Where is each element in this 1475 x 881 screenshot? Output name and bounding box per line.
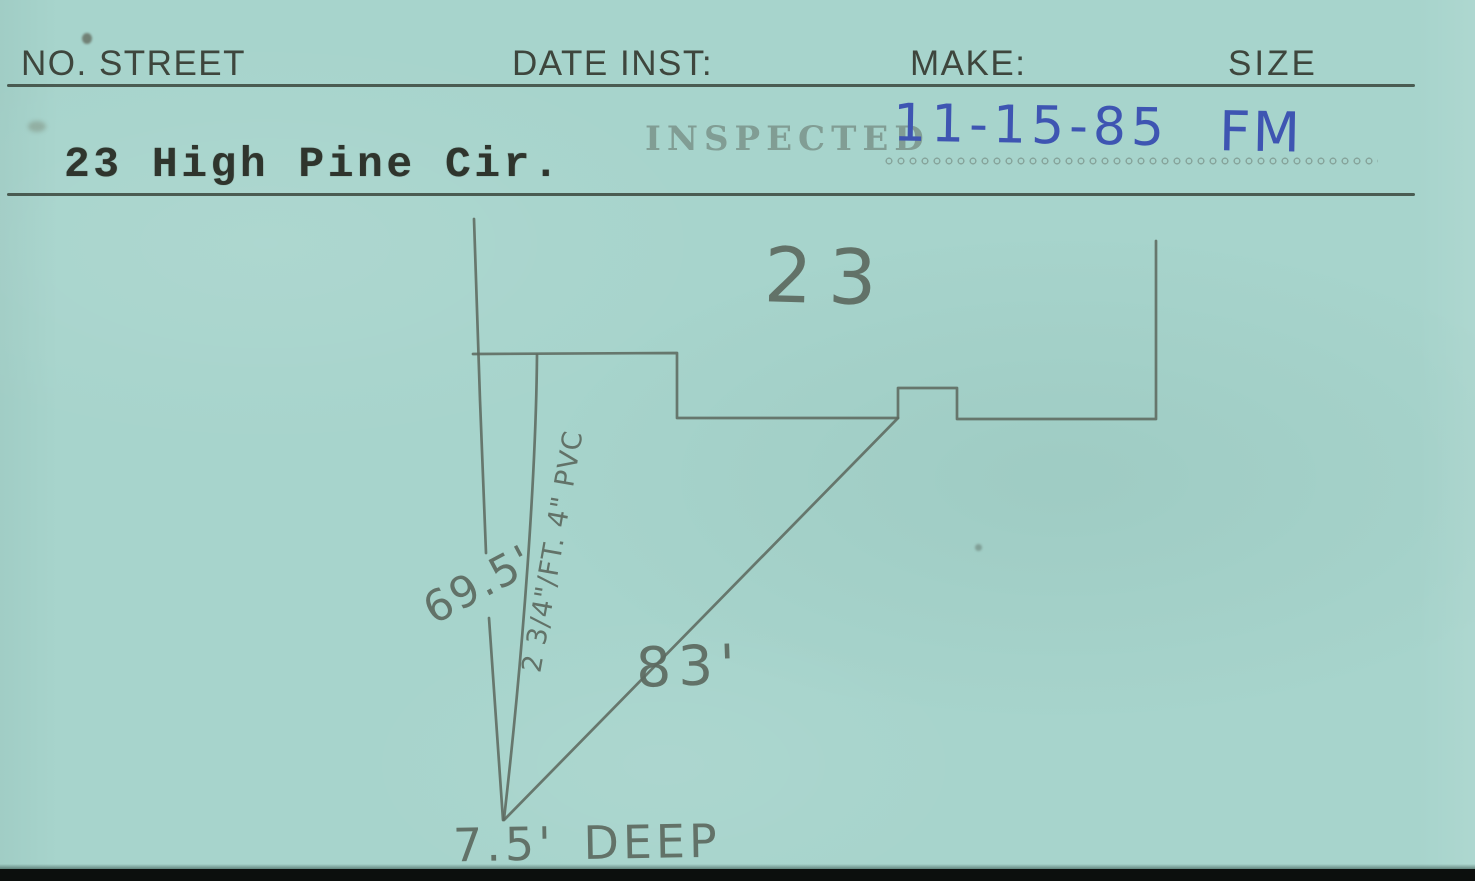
plot-sketch [0, 0, 1475, 881]
house-number-label: 23 [763, 230, 894, 322]
lateral-length-label: 83' [635, 632, 743, 700]
street-line-lower-segment [489, 618, 503, 820]
record-card: NO. STREET DATE INST: MAKE: SIZE 23 High… [0, 0, 1475, 869]
scan-background-strip [0, 869, 1475, 881]
street-line-upper-segment [474, 219, 486, 553]
